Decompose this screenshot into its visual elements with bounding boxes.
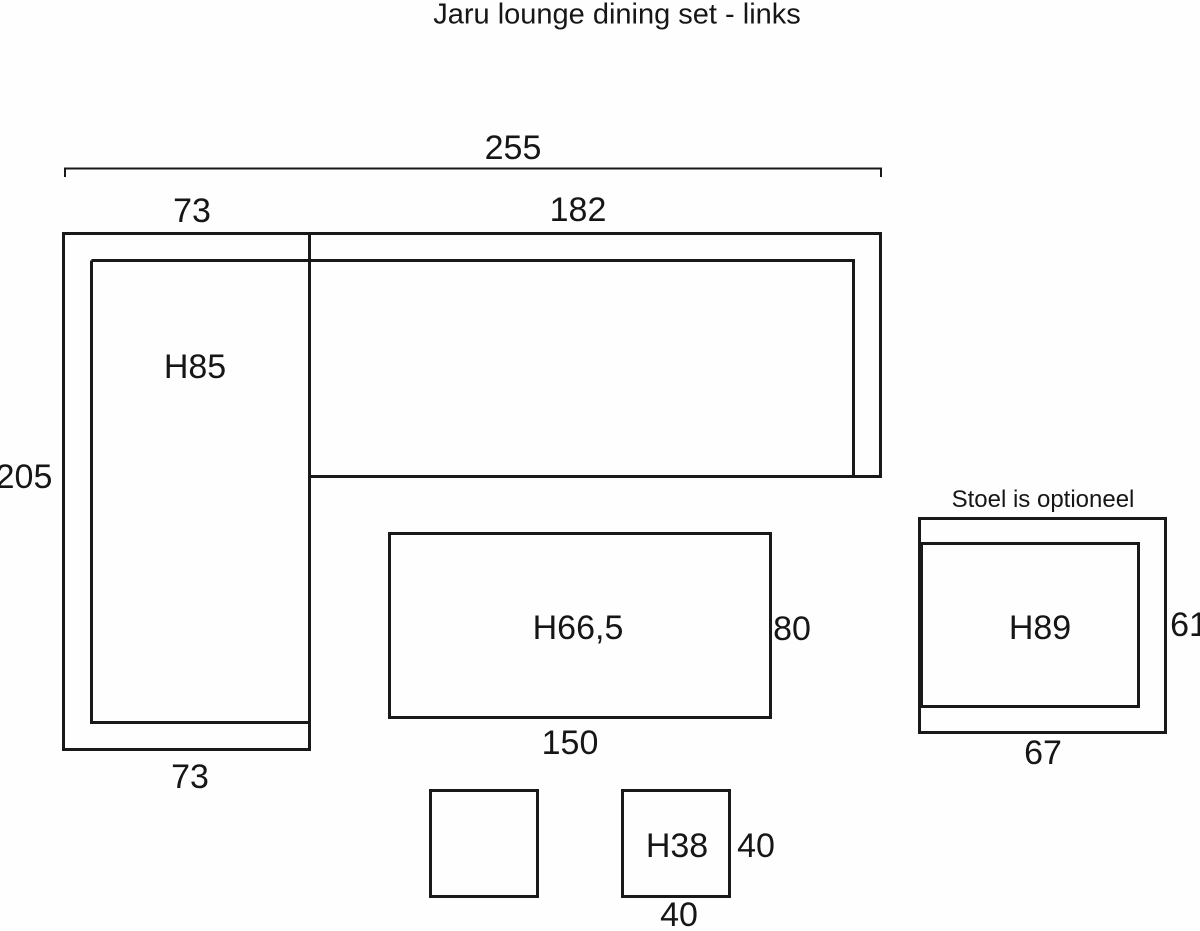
- sofa-inner-seat-left-bottom: [92, 261, 309, 723]
- table-depth-label: 80: [773, 612, 811, 646]
- sofa-overall-width-label: 255: [485, 131, 542, 165]
- chair-optional-note: Stoel is optioneel: [952, 488, 1135, 512]
- table-width-label: 150: [542, 726, 599, 760]
- sofa-left-width-label: 73: [173, 194, 211, 228]
- sofa-left-bottom-width-label: 73: [171, 760, 209, 794]
- chair-height-label: H89: [1009, 611, 1071, 645]
- stool-height-label: H38: [646, 829, 708, 863]
- stool-depth-label: 40: [737, 829, 775, 863]
- sofa-height-label: H85: [164, 350, 226, 384]
- page-title: Jaru lounge dining set - links: [433, 1, 801, 30]
- stool-width-label: 40: [660, 898, 698, 931]
- sofa-right-width-label: 182: [550, 193, 607, 227]
- chair-depth-label: 61: [1170, 608, 1200, 642]
- table-height-label: H66,5: [533, 611, 624, 645]
- sofa-outer-outline: [64, 234, 881, 750]
- sofa-depth-label: 205: [0, 460, 52, 494]
- dimension-line-255: [65, 169, 881, 178]
- chair-width-label: 67: [1024, 736, 1062, 770]
- diagram-canvas: Jaru lounge dining set - links 255 73 18…: [0, 0, 1200, 931]
- stool-left-outline: [431, 791, 538, 897]
